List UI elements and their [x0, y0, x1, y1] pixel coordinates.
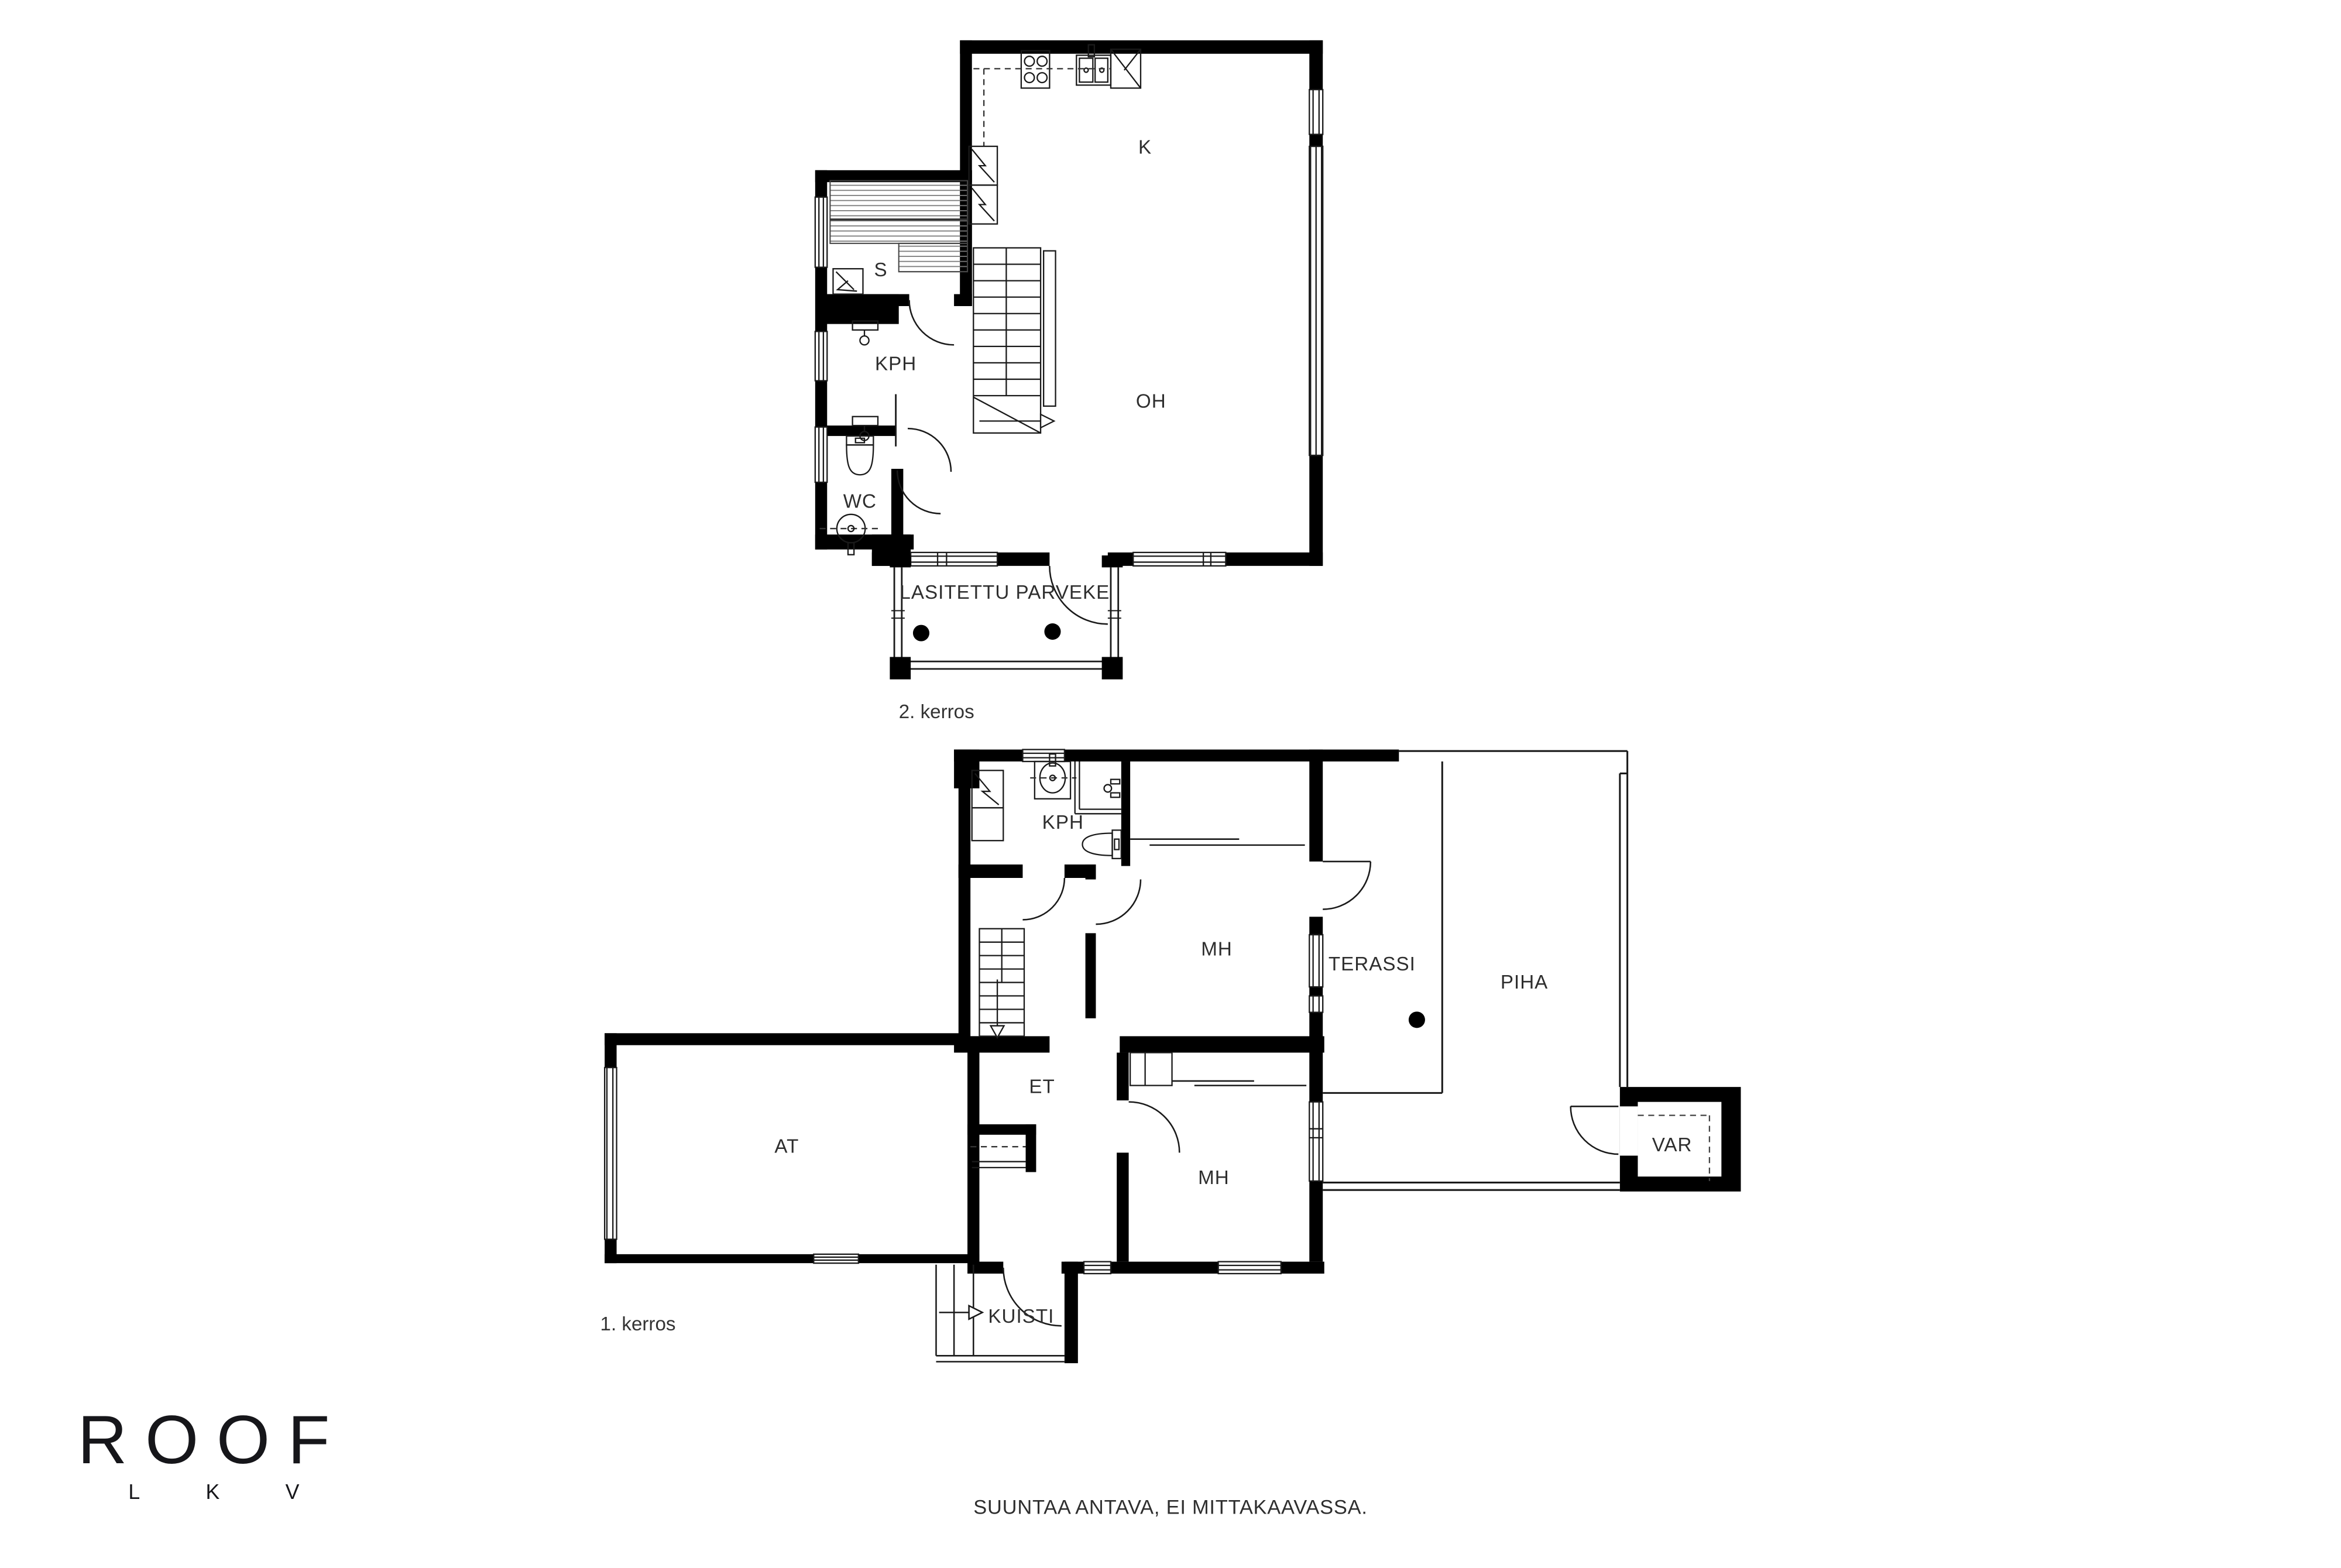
floor1-plan: KPH MH TERASSI PIHA ET AT MH VAR KUISTI …	[600, 750, 1741, 1363]
post-dot	[913, 625, 929, 641]
toilet-icon	[1082, 830, 1121, 858]
stove-icon	[1021, 51, 1049, 88]
window-mh-upper-small-icon	[1309, 996, 1323, 1013]
logo-wordmark: ROOF	[78, 1405, 348, 1474]
post-dot	[1044, 623, 1060, 640]
yard-outline	[1399, 751, 1627, 1087]
roof-lkv-logo: ROOF L K V	[78, 1405, 348, 1502]
floor-plan-drawing: K OH S KPH WC LASITETTU PARVEKE 2. kerro…	[0, 0, 2341, 1560]
window-at-icon	[813, 1254, 859, 1263]
kph1-fixtures	[972, 754, 1121, 859]
floor2-doors	[897, 300, 1108, 625]
stairs-down-icon	[979, 929, 1024, 1038]
window-mh-bottom-small-icon	[1084, 1262, 1111, 1274]
closet-mh-lower-icon	[1130, 1052, 1172, 1085]
disclaimer-text: SUUNTAA ANTAVA, EI MITTAKAAVASSA.	[0, 1496, 2341, 1518]
floor-plan-page: K OH S KPH WC LASITETTU PARVEKE 2. kerro…	[0, 0, 2341, 1561]
label-hallway: ET	[1029, 1076, 1055, 1097]
window-bottom-oh-right-icon	[1133, 553, 1226, 566]
window-mh-upper-icon	[1309, 935, 1323, 987]
window-sauna-icon	[815, 197, 827, 267]
tall-cabinet-icon	[969, 146, 997, 224]
label-sauna: S	[874, 259, 888, 281]
door-arc-sauna	[909, 300, 955, 345]
sauna-heater-icon	[833, 269, 863, 294]
label-storage: VAR	[1652, 1134, 1693, 1156]
label-living-room: OH	[1136, 390, 1166, 412]
caption-floor2: 2. kerros	[899, 701, 974, 723]
fridge-icon	[1111, 49, 1141, 88]
floor2-plan: K OH S KPH WC LASITETTU PARVEKE 2. kerro…	[815, 40, 1323, 723]
window-right-tall-icon	[1309, 146, 1323, 455]
door-arc-kph2	[908, 428, 951, 472]
label-bedroom-lower: MH	[1198, 1167, 1230, 1189]
label-kitchen: K	[1138, 137, 1152, 159]
shower-icon	[853, 321, 878, 345]
window-right-upper-icon	[1309, 90, 1323, 135]
yard-bottom-edge	[1323, 1182, 1620, 1190]
var-door-gap	[1620, 1106, 1638, 1155]
label-wc: WC	[843, 490, 877, 512]
label-bathroom-1f: KPH	[1042, 812, 1084, 833]
label-bedroom-upper: MH	[1201, 939, 1233, 960]
floor1-walls	[605, 750, 1741, 1363]
window-bottom-living-icon	[911, 553, 997, 566]
floor2-walls	[815, 40, 1323, 566]
label-bathroom-2f: KPH	[875, 354, 917, 375]
post-dot	[1409, 1011, 1425, 1028]
sauna-bench-icon	[830, 181, 967, 272]
closets-sliding-doors	[970, 839, 1306, 1168]
label-terrace: TERASSI	[1329, 953, 1416, 975]
label-porch: KUISTI	[988, 1306, 1054, 1327]
door-arc-kph1	[1022, 878, 1064, 919]
sauna-fixtures	[830, 181, 967, 294]
stairs-up-icon	[973, 248, 1055, 433]
shower-corner-icon	[1075, 761, 1121, 814]
entry-arrow-icon	[939, 1306, 983, 1319]
sliding-door-mh-lower-icon	[1172, 1081, 1307, 1086]
garage-door-icon	[605, 1068, 616, 1239]
counter-dashed-line	[973, 68, 1111, 146]
caption-floor1: 1. kerros	[600, 1313, 676, 1335]
toilet-icon	[846, 436, 873, 475]
door-terrace	[1323, 862, 1371, 910]
sliding-door-mh-upper-icon	[1130, 839, 1305, 845]
door-arc-mh-lower	[1129, 1102, 1180, 1153]
label-balcony: LASITETTU PARVEKE	[900, 582, 1110, 603]
label-yard: PIHA	[1501, 972, 1548, 993]
door-arc-mh-upper	[1096, 880, 1141, 925]
window-mh-lower-icon	[1309, 1102, 1323, 1181]
kitchen-fixtures	[969, 45, 1141, 224]
window-mh-bottom-icon	[1218, 1262, 1281, 1274]
door-arc-wc	[897, 471, 940, 514]
window-kph2-icon	[815, 331, 827, 380]
window-wc-icon	[815, 427, 827, 482]
window-kph1-icon	[1022, 750, 1064, 761]
label-garage: AT	[774, 1135, 799, 1157]
terrace-outline	[1323, 761, 1442, 1093]
balcony	[890, 555, 1123, 680]
door-var	[1571, 1106, 1619, 1154]
